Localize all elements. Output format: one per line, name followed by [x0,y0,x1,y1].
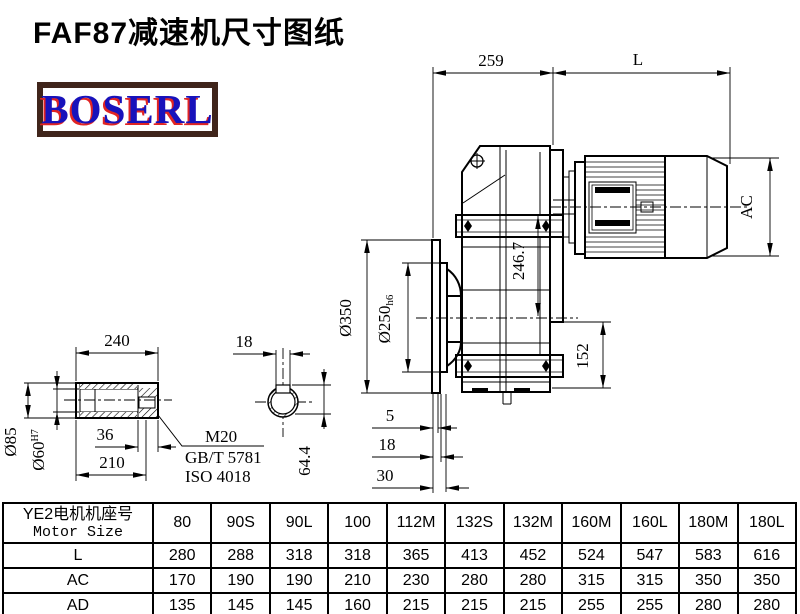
dim-bore-dia: Ø60H7 [29,429,48,471]
dim-152: 152 [573,343,592,369]
keyway [276,385,290,393]
cell: 452 [504,543,562,568]
col-header: 90L [270,503,328,543]
dim-240: 240 [104,331,130,350]
dim-210: 210 [99,453,125,472]
bolt-symbol [464,360,472,372]
cell: 280 [738,593,796,614]
crosshair-icon [469,153,485,169]
cell: 318 [270,543,328,568]
cell: 547 [621,543,679,568]
label-bolt-iso: ISO 4018 [185,467,251,486]
cell: 210 [328,568,386,593]
cell: 413 [445,543,503,568]
cell: 255 [562,593,620,614]
table-row-AD: AD 135 145 145 160 215 215 215 255 255 2… [3,593,796,614]
cell: 190 [211,568,269,593]
dim-36: 36 [97,425,114,444]
cell: 288 [211,543,269,568]
reducer-dimension-drawing: 259 L Ø350 Ø250h6 246.7 152 [0,0,800,502]
bolt-symbol [542,360,550,372]
dim-18: 18 [379,435,396,454]
col-header: 180M [679,503,737,543]
main-dimensions: 259 L Ø350 Ø250h6 246.7 152 [336,50,779,488]
col-header: 80 [153,503,211,543]
cell: 135 [153,593,211,614]
col-header: 132M [504,503,562,543]
cell: 215 [504,593,562,614]
motor-size-table: YE2电机机座号 Motor Size 80 90S 90L 100 112M … [2,502,797,614]
table-row-AC: AC 170 190 190 210 230 280 280 315 315 3… [3,568,796,593]
drawing-sheet: FAF87减速机尺寸图纸 BOSERL [0,0,800,614]
hollow-shaft-detail: 240 Ø85 Ø60H7 36 210 [1,331,264,486]
dim-259: 259 [478,51,504,70]
cell: 365 [387,543,445,568]
cell: 215 [445,593,503,614]
col-header: 90S [211,503,269,543]
col-header: 180L [738,503,796,543]
bolt-symbol [464,220,472,232]
table-header-row: YE2电机机座号 Motor Size 80 90S 90L 100 112M … [3,503,796,543]
dim-center-height: 246.7 [509,241,528,280]
header-en: Motor Size [4,524,152,542]
cell: 315 [562,568,620,593]
header-cn: YE2电机机座号 [4,505,152,524]
col-header: 160L [621,503,679,543]
col-header: 112M [387,503,445,543]
dim-pilot-diameter: Ø250h6 [375,294,396,343]
cell: 280 [679,593,737,614]
dim-30: 30 [377,466,394,485]
bolt-symbol [542,220,550,232]
cell: 230 [387,568,445,593]
label-bolt-thread: M20 [205,427,237,446]
cell: 315 [621,568,679,593]
table-header-cell: YE2电机机座号 Motor Size [3,503,153,543]
dim-flange-diameter: Ø350 [336,299,355,337]
cell: 145 [211,593,269,614]
table-row-L: L 280 288 318 318 365 413 452 524 547 58… [3,543,796,568]
cell: 616 [738,543,796,568]
col-header: 132S [445,503,503,543]
motor-nameplate [589,182,636,233]
dim-AC: AC [737,195,756,219]
cell: 583 [679,543,737,568]
cell: 215 [387,593,445,614]
row-label: L [3,543,153,568]
dim-shaft-dia: Ø85 [1,427,20,456]
cell: 160 [328,593,386,614]
cell: 318 [328,543,386,568]
centerlines [64,207,748,437]
col-header: 160M [562,503,620,543]
dim-L: L [633,50,643,69]
cell: 350 [679,568,737,593]
label-bolt-standard: GB/T 5781 [185,448,262,467]
retaining-bolt [139,397,155,408]
cell: 524 [562,543,620,568]
row-label: AC [3,568,153,593]
cell: 170 [153,568,211,593]
cell: 280 [504,568,562,593]
col-header: 100 [328,503,386,543]
cell: 190 [270,568,328,593]
cell: 280 [153,543,211,568]
dim-keyway-depth: 64.4 [295,446,314,476]
row-label: AD [3,593,153,614]
dim-5: 5 [386,406,395,425]
cell: 280 [445,568,503,593]
cell: 145 [270,593,328,614]
cell: 255 [621,593,679,614]
dim-keyway-width: 18 [236,332,253,351]
cell: 350 [738,568,796,593]
